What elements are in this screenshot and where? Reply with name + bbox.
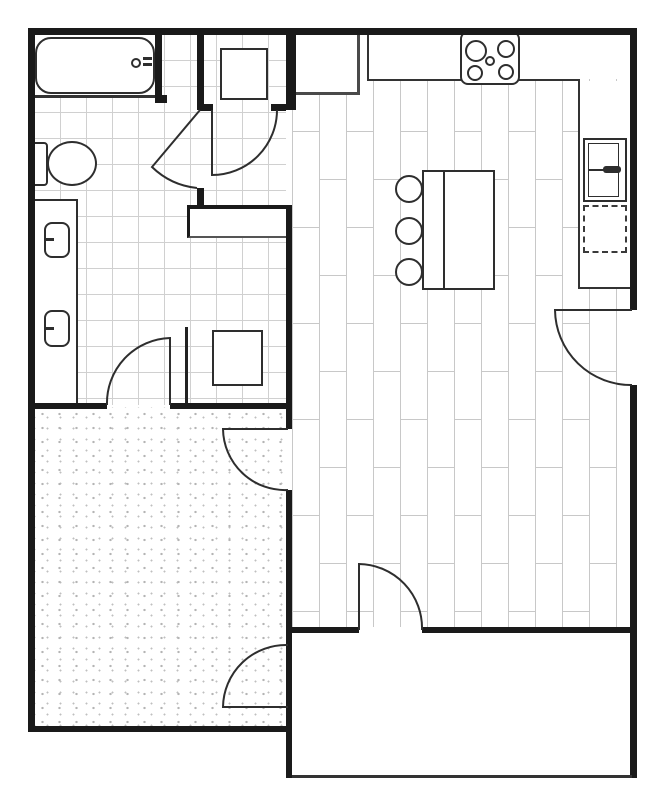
- entry-door: [555, 310, 632, 385]
- bedroom-hall-door: [107, 338, 170, 405]
- door-swings: [0, 0, 661, 800]
- bedroom-living-door: [223, 429, 288, 490]
- living-patio-door: [359, 564, 422, 630]
- laundry-door: [212, 110, 277, 175]
- floor-plan: [0, 0, 661, 800]
- bathroom-door: [152, 110, 200, 188]
- bedroom-patio-door: [223, 645, 288, 707]
